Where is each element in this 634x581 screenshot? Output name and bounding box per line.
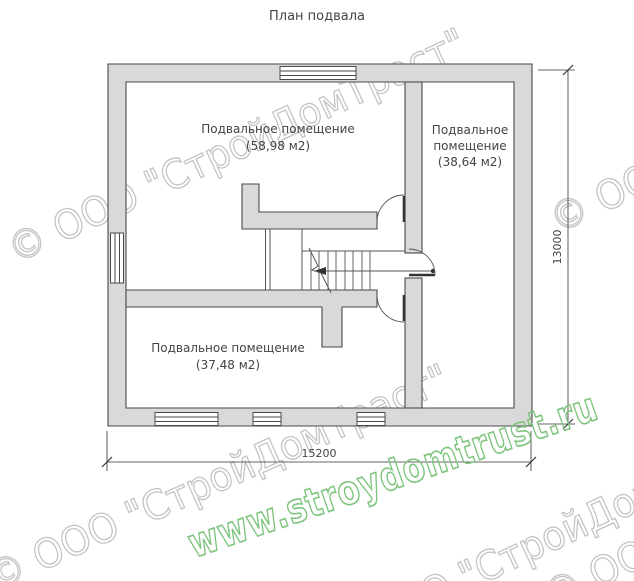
room-3-name: Подвальное помещение bbox=[151, 341, 305, 355]
dimension-right: 13000 bbox=[538, 65, 575, 429]
dimension-height-label: 13000 bbox=[551, 230, 564, 265]
stair-enclosure-lines bbox=[302, 229, 405, 290]
floor-plan-page: © ООО "СтройДомТраст" © ООО "СтройДомТра… bbox=[0, 0, 634, 581]
interior-wall-l-shape bbox=[242, 184, 377, 229]
window-bottom-1 bbox=[155, 413, 218, 426]
interior-wall-lower bbox=[126, 290, 377, 347]
room-3-area: (37,48 м2) bbox=[196, 358, 260, 372]
interior-wall-vertical-upper bbox=[405, 82, 422, 253]
window-bottom-2 bbox=[253, 413, 281, 426]
door-lower bbox=[377, 295, 404, 322]
watermark-copyright: © ООО "СтройДомТраст" bbox=[1, 20, 474, 273]
room-1-name: Подвальное помещение bbox=[201, 122, 355, 136]
dimension-width-label: 15200 bbox=[302, 447, 337, 460]
room-2-name-line2: помещение bbox=[433, 139, 506, 153]
window-bottom-3 bbox=[357, 413, 385, 426]
room-2-area: (38,64 м2) bbox=[438, 155, 502, 169]
floor-plan-drawing: © ООО "СтройДомТраст" © ООО "СтройДомТра… bbox=[0, 0, 634, 581]
page-title: План подвала bbox=[269, 9, 365, 24]
window-left bbox=[111, 233, 124, 283]
stair-partition bbox=[266, 229, 271, 290]
room-1-area: (58,98 м2) bbox=[246, 139, 310, 153]
interior-wall-vertical-lower bbox=[405, 278, 422, 408]
watermark-copyright: © ООО "СтройДомТраст" bbox=[543, 0, 634, 243]
door-upper bbox=[377, 195, 404, 222]
room-2-name-line1: Подвальное bbox=[432, 123, 508, 137]
window-top bbox=[280, 67, 356, 80]
